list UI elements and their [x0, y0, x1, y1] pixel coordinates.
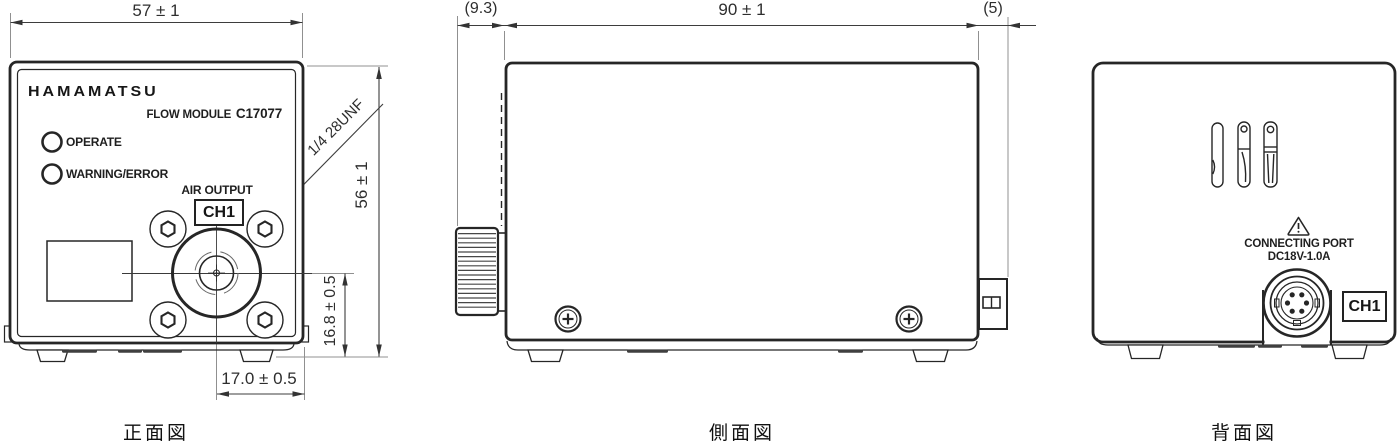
foot-pad: [1301, 345, 1328, 348]
side-bottom-lip: [507, 341, 977, 350]
technical-drawing-page: 57 ± 1 56 ± 1 16.8 ± 0.5 17.0 ± 0.5 1/4 …: [0, 0, 1400, 444]
hex-socket-icon: [259, 313, 272, 328]
view-label-front: 正面図: [96, 418, 216, 444]
foot-pad: [62, 350, 97, 353]
side-view: [456, 63, 1007, 362]
channel-badge-front: CH1: [194, 199, 244, 226]
rubber-foot: [1332, 345, 1367, 359]
dim-front-width: 57 ± 1: [106, 1, 206, 21]
connecting-port-label: CONNECTING PORT: [1224, 238, 1374, 250]
side-outline: [506, 63, 978, 340]
front-bottom-lip: [19, 344, 294, 350]
product-model-line: FLOW MODULE C17077: [140, 103, 282, 123]
operate-led-icon: [43, 133, 62, 152]
view-label-back: 背面図: [1184, 418, 1304, 444]
thumb-knob: [456, 228, 498, 315]
recess-cutout: [1265, 337, 1330, 345]
dim-front-height: 56 ± 1: [352, 140, 372, 230]
hex-socket-icon: [162, 222, 175, 237]
brand-logo-text: HAMAMATSU: [28, 83, 159, 100]
view-label-side: 側面図: [682, 418, 802, 444]
air-output-label: AIR OUTPUT: [177, 183, 257, 197]
foot-pad: [1258, 345, 1282, 348]
operate-led-label: OPERATE: [66, 135, 122, 149]
hex-socket-icon: [259, 222, 272, 237]
foot-pad: [118, 350, 142, 353]
foot-pad: [838, 350, 863, 353]
rubber-foot: [1128, 345, 1163, 359]
dim-side-depth: 90 ± 1: [692, 0, 792, 20]
hex-socket-icon: [162, 313, 175, 328]
dim-side-rear: (5): [963, 0, 1023, 18]
power-rating-label: DC18V-1.0A: [1224, 251, 1374, 263]
dim-front-port-horizontal: 17.0 ± 0.5: [209, 369, 309, 389]
warning-led-label: WARNING/ERROR: [66, 167, 168, 181]
dim-side-knob: (9.3): [446, 0, 516, 18]
warning-led-icon: [43, 165, 62, 184]
product-name-text: FLOW MODULE: [146, 109, 231, 121]
foot-pad: [143, 350, 182, 353]
model-number-text: C17077: [236, 106, 282, 121]
rubber-foot: [913, 350, 948, 362]
dim-front-port-vertical: 16.8 ± 0.5: [322, 261, 340, 361]
rubber-foot: [528, 350, 563, 362]
rubber-foot: [240, 350, 273, 362]
channel-badge-back: CH1: [1342, 291, 1387, 322]
foot-pad: [1218, 345, 1255, 348]
foot-pad: [627, 350, 668, 353]
